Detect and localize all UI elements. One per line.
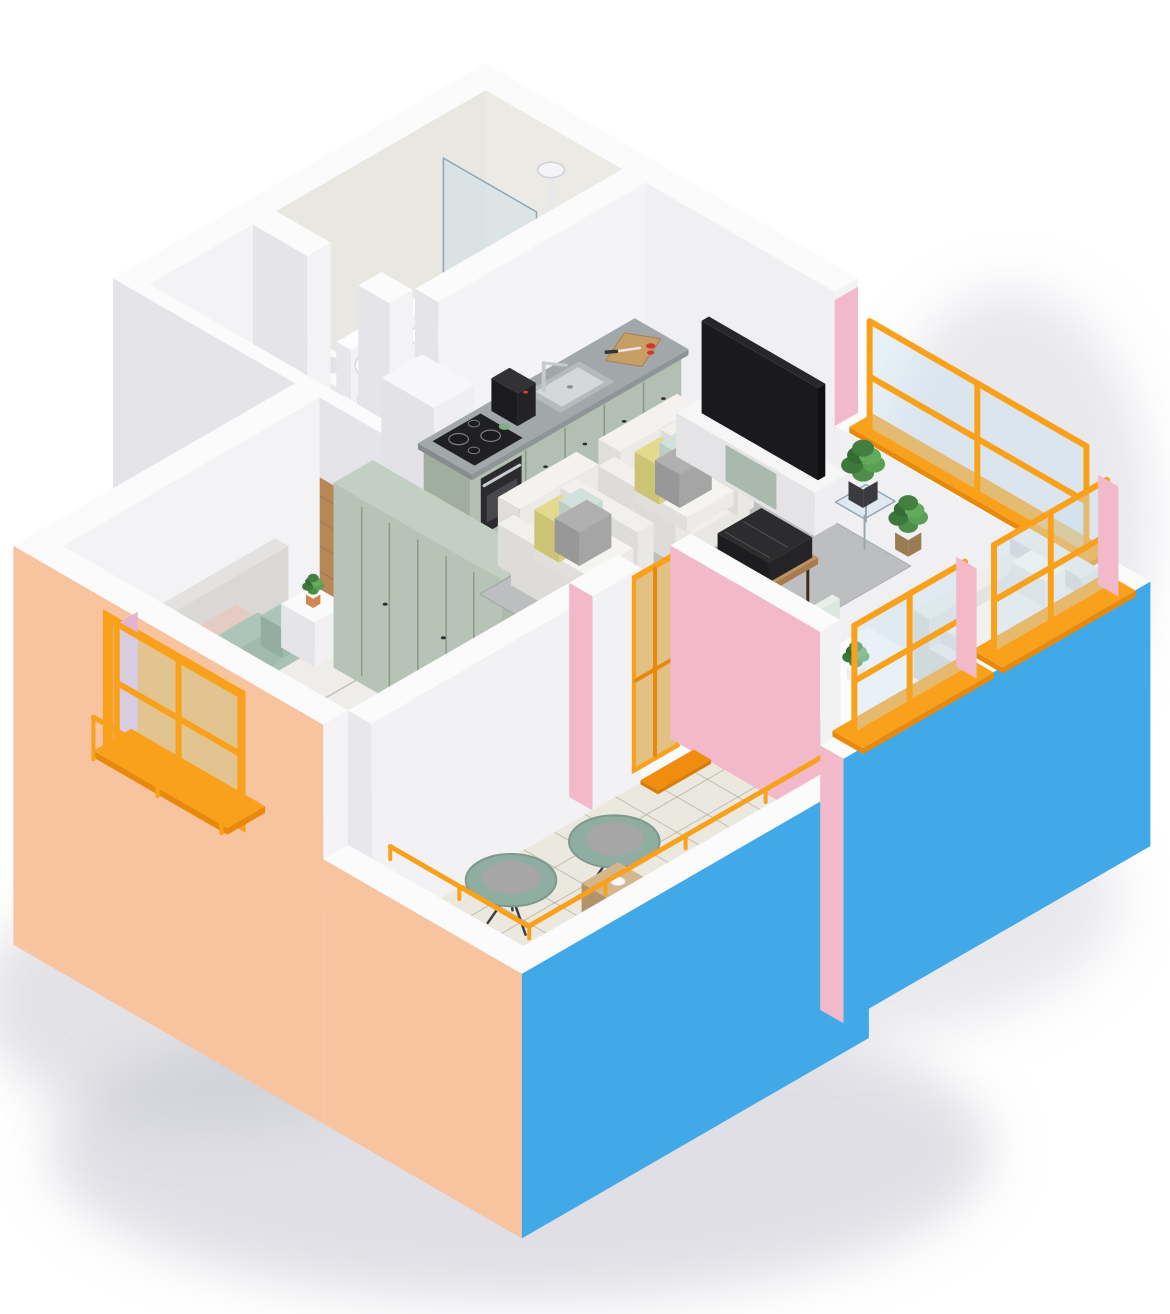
sink-drain bbox=[567, 385, 573, 389]
chili bbox=[647, 351, 654, 355]
faucet-spout bbox=[544, 363, 567, 365]
wardrobe-knob bbox=[441, 636, 446, 639]
nightstand-plant bbox=[308, 574, 319, 583]
bedroom-south-wall bbox=[569, 583, 592, 811]
wardrobe-knob bbox=[383, 603, 388, 606]
floorplan-3d-render bbox=[0, 0, 1170, 1314]
balcony-south-parapet bbox=[499, 960, 522, 1238]
cabinet-knob bbox=[583, 443, 588, 446]
cabinet-knob bbox=[661, 397, 666, 400]
toilet-tank bbox=[336, 342, 351, 399]
burner bbox=[481, 430, 501, 441]
knife-handle bbox=[606, 351, 616, 352]
chili bbox=[646, 343, 655, 348]
coffee-machine-light bbox=[523, 391, 528, 394]
green-cup bbox=[499, 423, 510, 430]
pink-window-jamb bbox=[956, 557, 976, 679]
bowl-chair-cushion bbox=[586, 822, 644, 855]
tv bbox=[818, 384, 825, 481]
cabinet-knob bbox=[622, 420, 627, 423]
bowl-chair-cushion bbox=[482, 861, 540, 894]
cabinet-knob bbox=[543, 465, 548, 468]
floor-plant-basket bbox=[898, 495, 918, 510]
burner bbox=[468, 447, 479, 454]
south-facade-low-wall bbox=[820, 745, 843, 1023]
floorplan-figure bbox=[0, 0, 1170, 1314]
pink-window-jamb bbox=[1098, 475, 1118, 597]
shower-head bbox=[538, 162, 565, 177]
burner bbox=[468, 420, 479, 427]
burner bbox=[449, 434, 469, 445]
tv-plant bbox=[852, 440, 874, 457]
